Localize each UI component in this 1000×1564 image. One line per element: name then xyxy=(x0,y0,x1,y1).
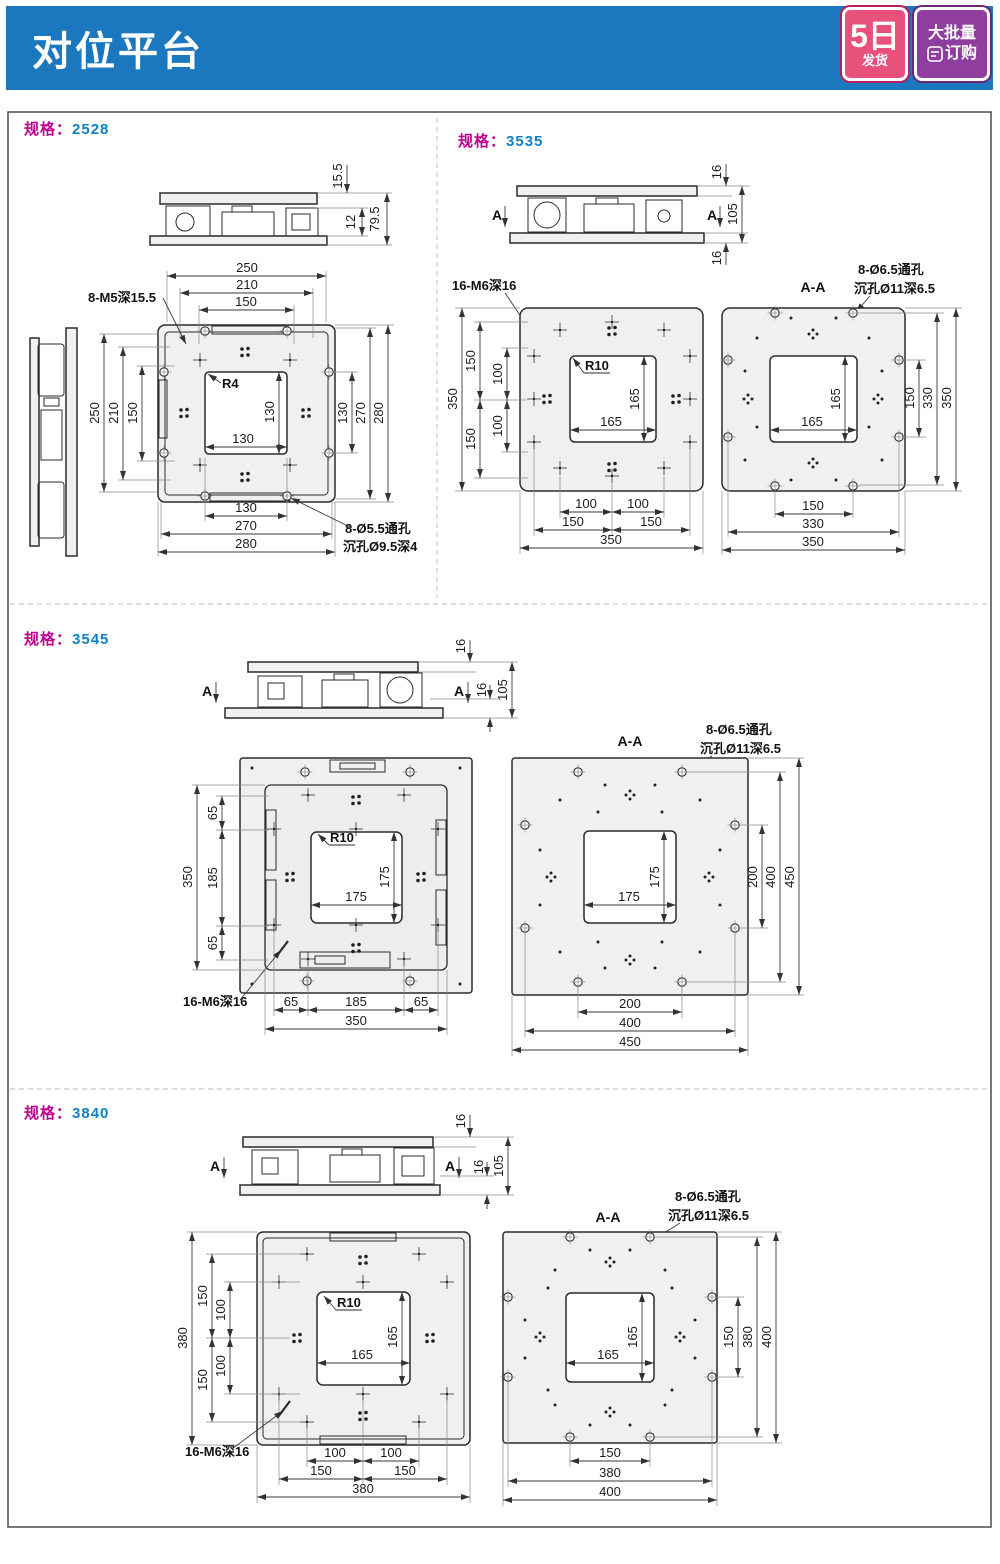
left-side-view-2528 xyxy=(30,328,77,556)
dim-label: 130 xyxy=(232,431,254,446)
dim-label: 400 xyxy=(763,866,778,888)
section-mark: A xyxy=(210,1158,220,1174)
dim-label: 175 xyxy=(618,889,640,904)
hole-note-line2: 沉孔Ø9.5深4 xyxy=(343,539,418,554)
plan-view-3840: 380 150 100 100 150 100 100 150 150 380 … xyxy=(175,1232,470,1503)
dim-label: 150 xyxy=(640,514,662,529)
dim-label: 400 xyxy=(619,1015,641,1030)
dim-label: 350 xyxy=(939,387,954,409)
dim-label: 15.5 xyxy=(330,163,345,188)
dim-label: 105 xyxy=(491,1155,506,1177)
dim-label: 65 xyxy=(205,806,220,820)
dim-label: 380 xyxy=(175,1327,190,1349)
dim-label: 165 xyxy=(627,388,642,410)
dim-label: 450 xyxy=(782,866,797,888)
dim-label: 130 xyxy=(235,500,257,515)
section-view-3535: A-A 8-Ø6.5通孔 沉孔Ø11深6.5 150 330 350 150 3… xyxy=(721,262,963,555)
dim-label: 105 xyxy=(495,679,510,701)
dim-label: 165 xyxy=(597,1347,619,1362)
dim-label: 100 xyxy=(380,1445,402,1460)
side-view-3840: A A 16 16 105 xyxy=(210,1114,514,1209)
dim-label: 450 xyxy=(619,1034,641,1049)
radius-note: R10 xyxy=(585,358,609,373)
dim-label: 150 xyxy=(310,1463,332,1478)
dim-label: 400 xyxy=(759,1326,774,1348)
dim-label: 210 xyxy=(236,277,258,292)
dim-label: 380 xyxy=(352,1481,374,1496)
dim-label: 100 xyxy=(490,363,505,385)
dim-label: 175 xyxy=(377,866,392,888)
dim-label: 270 xyxy=(235,518,257,533)
hole-note-line2: 沉孔Ø11深6.5 xyxy=(700,741,781,756)
inner-hole xyxy=(570,356,656,442)
dim-label: 330 xyxy=(802,516,824,531)
dim-label: 150 xyxy=(463,350,478,372)
dim-label: 280 xyxy=(371,402,386,424)
dim-label: 175 xyxy=(345,889,367,904)
inner-hole xyxy=(566,1293,654,1382)
dim-label: 165 xyxy=(625,1326,640,1348)
section-label: A-A xyxy=(618,733,643,749)
dim-label: 350 xyxy=(445,388,460,410)
dims-left: 350 150 100 100 150 xyxy=(445,308,528,491)
dim-label: 16 xyxy=(709,165,724,179)
dim-label: 150 xyxy=(463,428,478,450)
hole-note-line1: 8-Ø6.5通孔 xyxy=(675,1189,741,1204)
dim-label: 65 xyxy=(414,994,428,1009)
dim-label: 150 xyxy=(721,1326,736,1348)
dim-label: 165 xyxy=(828,388,843,410)
dim-label: 100 xyxy=(490,415,505,437)
dim-label: 150 xyxy=(195,1369,210,1391)
dim-label: 16 xyxy=(453,639,468,653)
dim-label: 350 xyxy=(600,532,622,547)
dim-label: 350 xyxy=(180,866,195,888)
dim-label: 16 xyxy=(709,251,724,265)
dim-label: 150 xyxy=(235,294,257,309)
dim-label: 65 xyxy=(284,994,298,1009)
section-mark: A xyxy=(454,683,464,699)
dim-label: 150 xyxy=(562,514,584,529)
dim-label: 185 xyxy=(345,994,367,1009)
hole-note-line1: 8-Ø5.5通孔 xyxy=(345,521,411,536)
dim-label: 380 xyxy=(740,1326,755,1348)
hole-note-line1: 8-Ø6.5通孔 xyxy=(858,262,924,277)
thread-note: 16-M6深16 xyxy=(185,1444,249,1459)
dim-label: 165 xyxy=(600,414,622,429)
dim-label: 130 xyxy=(262,401,277,423)
dim-label: 350 xyxy=(345,1013,367,1028)
dim-label: 12 xyxy=(343,215,358,229)
dim-label: 175 xyxy=(647,866,662,888)
dim-label: 150 xyxy=(599,1445,621,1460)
dim-label: 65 xyxy=(205,936,220,950)
dim-label: 150 xyxy=(802,498,824,513)
dim-label: 150 xyxy=(394,1463,416,1478)
inner-hole xyxy=(770,356,857,442)
section-dividers xyxy=(10,118,990,1089)
dim-label: 100 xyxy=(575,496,597,511)
section-mark: A xyxy=(707,207,717,223)
section-label: A-A xyxy=(596,1209,621,1225)
thread-note: 8-M5深15.5 xyxy=(88,290,156,305)
radius-note: R10 xyxy=(337,1295,361,1310)
dims-right: 130 270 280 xyxy=(335,325,394,502)
dim-label: 105 xyxy=(725,203,740,225)
dim-label: 250 xyxy=(87,402,102,424)
plan-view-3545: 350 65 185 65 65 185 65 350 175 175 R10 … xyxy=(180,758,472,1035)
dim-label: 330 xyxy=(920,387,935,409)
dim-label: 280 xyxy=(235,536,257,551)
dim-label: 100 xyxy=(213,1299,228,1321)
dim-label: 16 xyxy=(471,1160,486,1174)
dim-label: 150 xyxy=(902,387,917,409)
dim-label: 200 xyxy=(745,866,760,888)
section-view-3840: A-A 8-Ø6.5通孔 沉孔Ø11深6.5 150 380 400 150 3… xyxy=(501,1189,783,1506)
dim-label: 165 xyxy=(801,414,823,429)
dim-label: 79.5 xyxy=(367,206,382,231)
side-view-2528: 15.5 12 79.5 xyxy=(150,163,392,245)
dim-label: 250 xyxy=(236,260,258,275)
thread-note: 16-M6深16 xyxy=(183,994,247,1009)
hole-note-line1: 8-Ø6.5通孔 xyxy=(706,722,772,737)
dim-label: 100 xyxy=(213,1355,228,1377)
dim-label: 185 xyxy=(205,867,220,889)
side-view-3535: A A 16 105 16 xyxy=(492,164,750,265)
dim-label: 165 xyxy=(351,1347,373,1362)
dim-label: 270 xyxy=(353,402,368,424)
section-label: A-A xyxy=(801,279,826,295)
dim-label: 165 xyxy=(385,1326,400,1348)
section-mark: A xyxy=(202,683,212,699)
dim-label: 380 xyxy=(599,1465,621,1480)
plan-view-2528: 250 210 150 250 210 150 130 270 280 130 … xyxy=(87,260,418,557)
radius-note: R10 xyxy=(330,830,354,845)
plan-view-3535: 16-M6深16 350 150 100 100 150 100 100 150… xyxy=(445,278,703,554)
dim-label: 210 xyxy=(106,402,121,424)
dim-label: 150 xyxy=(125,402,140,424)
dim-label: 200 xyxy=(619,996,641,1011)
section-view-3545: A-A 8-Ø6.5通孔 沉孔Ø11深6.5 200 400 450 200 4… xyxy=(512,722,804,1056)
dim-label: 100 xyxy=(324,1445,346,1460)
dim-label: 130 xyxy=(335,402,350,424)
dim-label: 400 xyxy=(599,1484,621,1499)
dim-label: 16 xyxy=(474,683,489,697)
hole-note-line2: 沉孔Ø11深6.5 xyxy=(668,1208,749,1223)
dim-label: 100 xyxy=(627,496,649,511)
dim-label: 16 xyxy=(453,1114,468,1128)
dim-label: 350 xyxy=(802,534,824,549)
inner-hole xyxy=(584,831,676,923)
side-view-3545: A A 16 16 105 xyxy=(202,639,518,732)
section-mark: A xyxy=(492,207,502,223)
section-mark: A xyxy=(445,1158,455,1174)
thread-note: 16-M6深16 xyxy=(452,278,516,293)
hole-note-line2: 沉孔Ø11深6.5 xyxy=(854,281,935,296)
dim-label: 150 xyxy=(195,1285,210,1307)
radius-note: R4 xyxy=(222,376,239,391)
